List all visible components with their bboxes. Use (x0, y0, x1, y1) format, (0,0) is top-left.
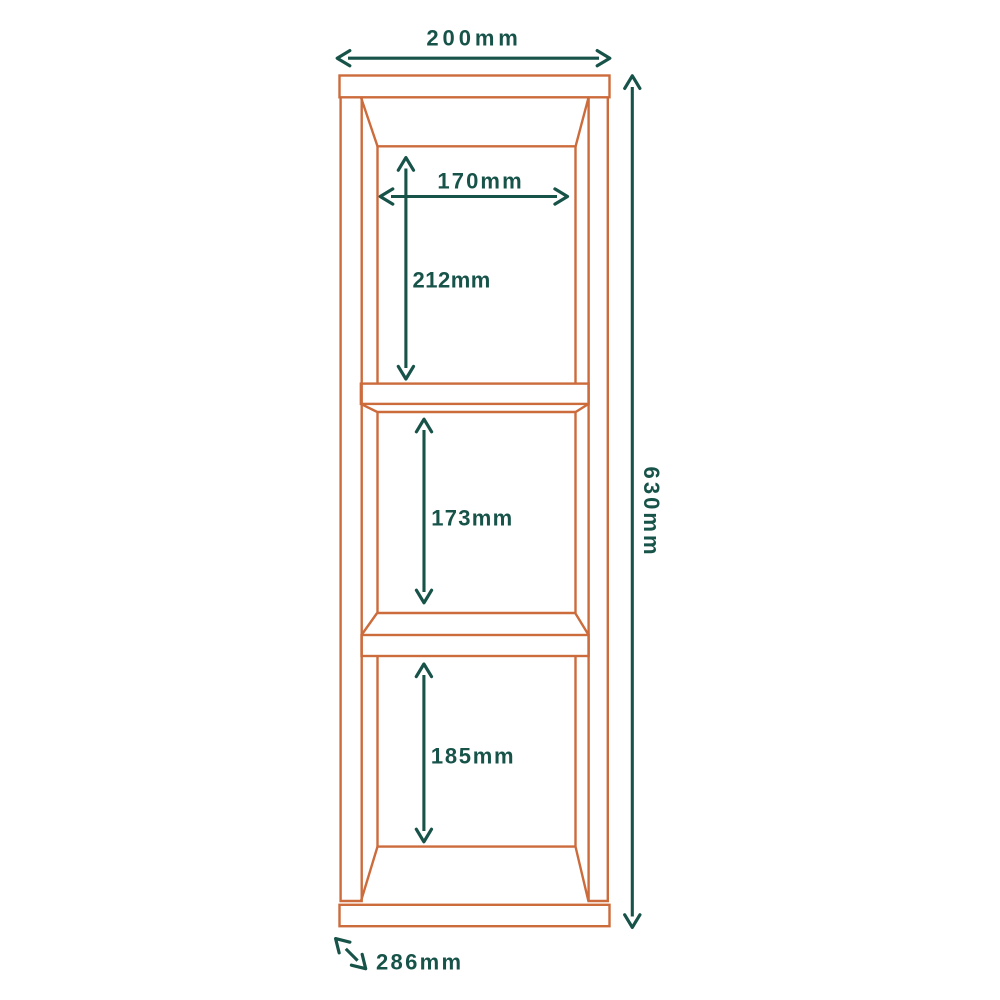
svg-text:200mm: 200mm (426, 26, 521, 51)
svg-text:212mm: 212mm (413, 268, 491, 293)
svg-text:173mm: 173mm (431, 506, 513, 531)
svg-text:630mm: 630mm (639, 467, 664, 558)
svg-text:286mm: 286mm (376, 950, 463, 975)
svg-text:185mm: 185mm (431, 744, 515, 769)
svg-text:170mm: 170mm (437, 169, 523, 194)
